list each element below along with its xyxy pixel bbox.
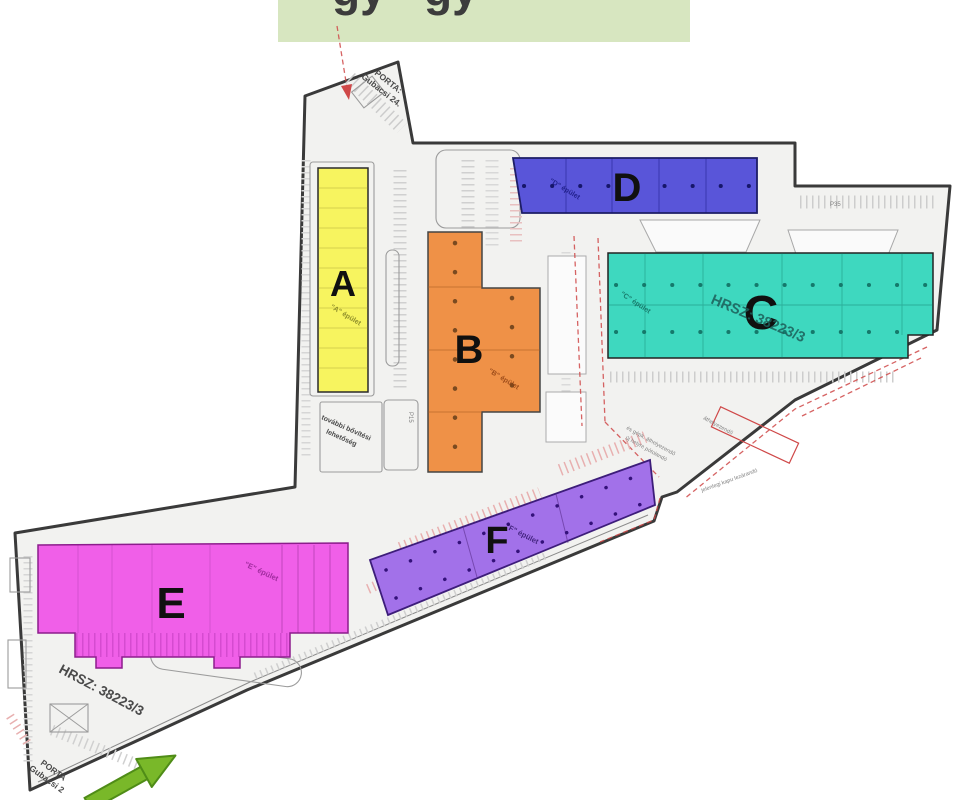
building-a-letter: A — [330, 263, 356, 304]
building-a: A "A" épület — [318, 168, 368, 392]
building-d-letter: D — [613, 166, 642, 210]
parking-count-p35: P35 — [830, 202, 841, 208]
building-c: C "C" épület HRSZ: 38223/3 — [608, 253, 933, 358]
building-b-letter: B — [455, 328, 484, 372]
site-plan-drawing: A "A" épület B "B" épület — [0, 0, 969, 800]
building-d: D "D" épület — [513, 158, 757, 213]
gate-note: jelenlegi kapu lezárandó — [700, 468, 759, 494]
site-plan-page: gy gy — [0, 0, 969, 800]
building-e-letter: E — [156, 579, 185, 628]
parking-count-p15: P15 — [407, 412, 413, 423]
